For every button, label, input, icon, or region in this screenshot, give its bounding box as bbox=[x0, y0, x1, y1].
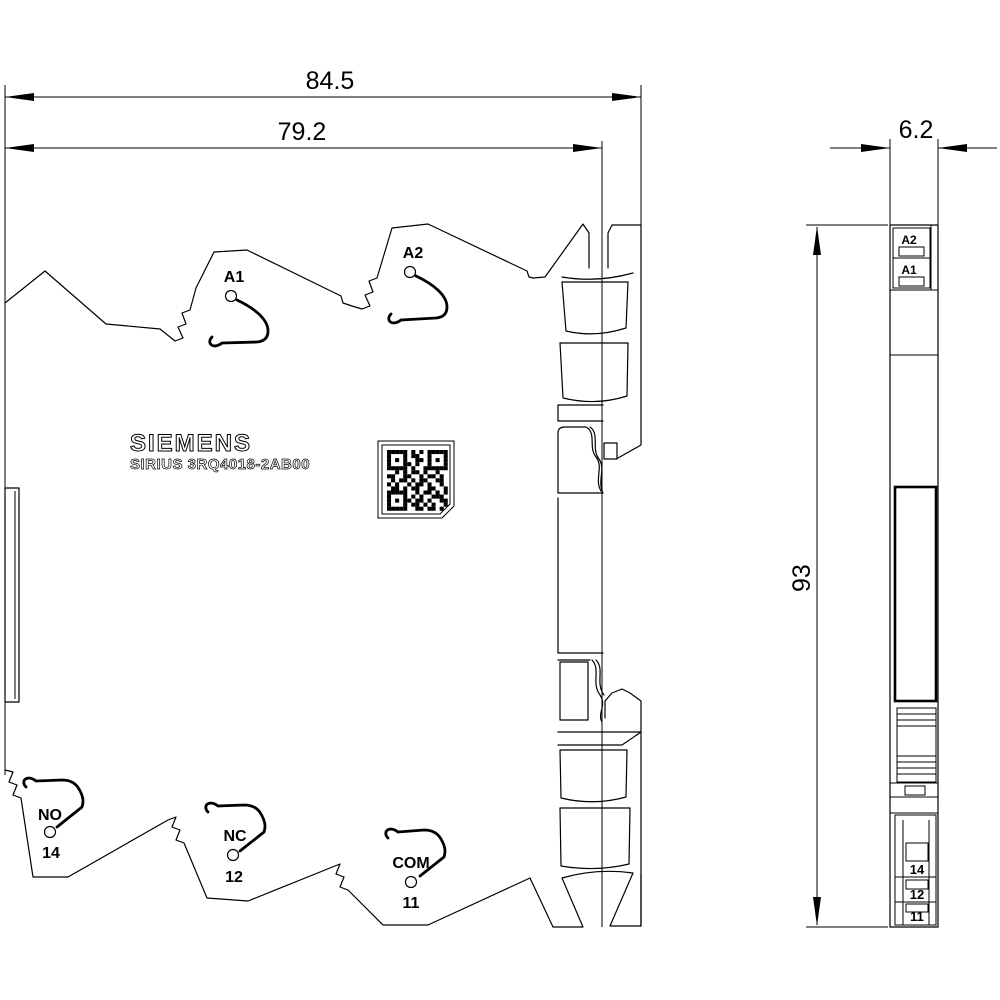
terminal-a1: A1 bbox=[210, 269, 268, 346]
qr-modules bbox=[387, 450, 448, 511]
din-latch-upper bbox=[558, 427, 603, 493]
outline-top bbox=[5, 224, 589, 341]
terminal-nc-hole bbox=[228, 850, 239, 861]
terminal-a1-label: A1 bbox=[224, 269, 245, 286]
terminal-com-hole bbox=[406, 877, 417, 888]
side-terminal-a1-slot bbox=[899, 277, 924, 286]
arrowhead-left-icon bbox=[5, 93, 34, 101]
brand-logo: SIEMENS bbox=[130, 430, 252, 457]
terminal-no-hole bbox=[45, 827, 56, 838]
terminal-no-label: NO bbox=[38, 807, 62, 824]
side-terminal-a2-slot bbox=[899, 247, 924, 256]
terminal-a1-spring bbox=[210, 300, 268, 346]
din-wall bbox=[558, 498, 603, 660]
din-latch-lower bbox=[560, 660, 604, 722]
dim-label-height: 93 bbox=[788, 564, 816, 592]
qr-code bbox=[378, 441, 454, 518]
side-view: 6.2 93 A2 A1 bbox=[788, 116, 997, 927]
dimension-depth: 6.2 bbox=[830, 116, 997, 225]
side-small-slot bbox=[905, 786, 925, 795]
drawing-canvas: 84.5 79.2 bbox=[0, 0, 1000, 1000]
side-cover-slide bbox=[895, 487, 936, 701]
din-box-c bbox=[560, 750, 627, 802]
terminal-a2-hole bbox=[405, 267, 416, 278]
side-terminal-11-label: 11 bbox=[910, 909, 924, 924]
arrowhead-right-icon bbox=[573, 144, 602, 152]
side-terminal-a2-label: A2 bbox=[901, 233, 917, 247]
side-terminal-14-slot bbox=[906, 843, 928, 861]
din-box-a bbox=[562, 282, 628, 334]
terminal-a1-hole bbox=[226, 291, 237, 302]
dimension-height: 93 bbox=[788, 225, 888, 927]
outline-bottom bbox=[5, 770, 641, 927]
side-body-outline bbox=[890, 225, 938, 927]
arrowhead-left-icon bbox=[5, 144, 34, 152]
product-number: SIRIUS 3RQ4018-2AB00 bbox=[130, 456, 310, 473]
terminal-nc: NC 12 bbox=[206, 803, 265, 886]
terminal-11-label: 11 bbox=[403, 895, 420, 912]
terminal-14-label: 14 bbox=[42, 845, 60, 862]
side-band bbox=[890, 797, 938, 813]
arrowhead-down-icon bbox=[813, 897, 821, 926]
terminal-com-label: COM bbox=[392, 855, 429, 872]
dimension-body-width: 79.2 bbox=[5, 118, 602, 927]
side-terminal-12-label: 12 bbox=[910, 887, 924, 902]
terminal-a2-label: A2 bbox=[403, 245, 424, 262]
arrowhead-left-icon bbox=[861, 144, 890, 152]
terminal-a2-spring bbox=[389, 276, 447, 323]
arrowhead-right-icon bbox=[938, 144, 967, 152]
label-slot bbox=[5, 488, 19, 702]
dim-label-body-width: 79.2 bbox=[278, 118, 327, 146]
terminal-12-label: 12 bbox=[225, 869, 243, 886]
din-bar-upper bbox=[558, 405, 617, 459]
side-body: A2 A1 bbox=[890, 225, 938, 927]
side-grip-stripes bbox=[897, 714, 936, 774]
terminal-a2: A2 bbox=[389, 245, 447, 323]
side-grip bbox=[897, 708, 936, 782]
dimension-drawing: 84.5 79.2 bbox=[0, 0, 1000, 1000]
front-view: 84.5 79.2 bbox=[5, 67, 641, 927]
arrowhead-up-icon bbox=[813, 226, 821, 255]
side-terminal-14-label: 14 bbox=[910, 862, 925, 877]
dim-label-overall-width: 84.5 bbox=[306, 67, 355, 95]
din-box-b bbox=[560, 343, 628, 402]
terminal-nc-label: NC bbox=[223, 828, 247, 845]
dimension-overall-width: 84.5 bbox=[5, 67, 641, 775]
housing-outline bbox=[5, 224, 641, 927]
terminal-no: NO 14 bbox=[24, 778, 83, 862]
terminal-com: COM 11 bbox=[386, 829, 445, 912]
arrowhead-right-icon bbox=[612, 93, 641, 101]
din-box-d bbox=[560, 808, 630, 869]
dim-label-depth: 6.2 bbox=[899, 116, 934, 144]
side-terminal-a1-label: A1 bbox=[901, 263, 917, 277]
